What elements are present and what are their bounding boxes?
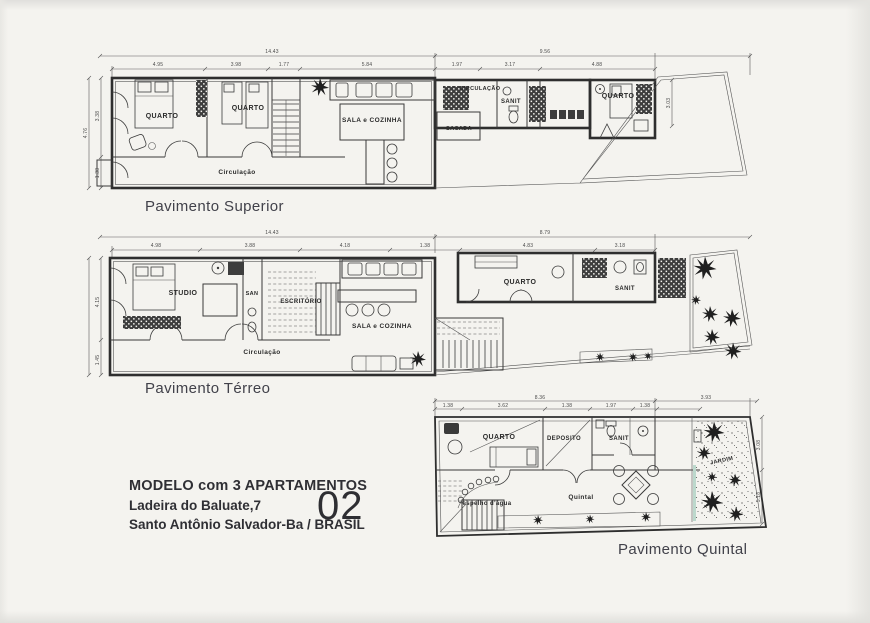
caption-pavimento-terreo: Pavimento Térreo bbox=[145, 380, 270, 397]
plant-icon bbox=[586, 515, 595, 524]
room-label-sanit: SANIT bbox=[501, 99, 521, 105]
closet-icon bbox=[529, 86, 546, 122]
dim-seg: 4.83 bbox=[523, 243, 534, 249]
dim-seg: 1.38 bbox=[562, 403, 573, 409]
room-label-studio: STUDIO bbox=[169, 290, 198, 297]
plan-quintal: 8.36 3.93 1.38 3.62 1.38 1.97 1.38 3.08 … bbox=[433, 395, 766, 536]
room-label-quarto: QUARTO bbox=[504, 279, 537, 286]
dim-seg: 4.98 bbox=[151, 243, 162, 249]
dim-total-terreo: 14.43 bbox=[265, 230, 279, 236]
dimension-lines: 14.43 9.56 4.95 3.98 1.77 5.84 1.97 3.17… bbox=[83, 49, 752, 190]
dim-seg: 4.95 bbox=[153, 62, 164, 68]
dim-vert: 3.08 bbox=[756, 440, 762, 451]
caption-pavimento-superior: Pavimento Superior bbox=[145, 198, 284, 215]
plan-terreo: 14.43 8.79 4.98 3.88 4.18 1.38 4.83 3.18… bbox=[87, 230, 752, 377]
wardrobe-icon bbox=[196, 80, 207, 117]
plant-icon bbox=[694, 257, 717, 280]
plant-icon bbox=[704, 329, 720, 345]
dim-vert: 1.45 bbox=[95, 355, 101, 366]
plant-icon bbox=[691, 295, 701, 305]
entry-stair-icon bbox=[435, 318, 503, 370]
plant-icon bbox=[596, 353, 605, 362]
room-label-quarto: QUARTO bbox=[146, 113, 179, 120]
room-label-sanit: SANIT bbox=[609, 436, 629, 442]
furniture bbox=[444, 420, 701, 505]
dim-seg: 1.97 bbox=[606, 403, 617, 409]
dim-seg: 3.18 bbox=[615, 243, 626, 249]
caption-pavimento-quintal: Pavimento Quintal bbox=[618, 541, 747, 558]
dim-seg: 1.38 bbox=[443, 403, 454, 409]
bench-icon bbox=[123, 316, 181, 329]
dim-seg: 4.88 bbox=[592, 62, 603, 68]
room-label-circulacao: CIRCULAÇÃO bbox=[460, 85, 501, 92]
room-label-quarto: QUARTO bbox=[602, 93, 635, 100]
planter-icon bbox=[658, 258, 686, 298]
walls bbox=[110, 253, 750, 375]
plant-icon bbox=[311, 78, 329, 96]
wardrobe-icon bbox=[636, 84, 652, 114]
room-label-sanit: SANIT bbox=[615, 286, 635, 292]
plan-superior: 14.43 9.56 4.95 3.98 1.77 5.84 1.97 3.17… bbox=[83, 49, 752, 190]
plant-icon bbox=[641, 512, 651, 522]
room-label-sala-cozinha: SALA e COZINHA bbox=[352, 323, 412, 330]
plant-icon bbox=[410, 351, 426, 367]
sheet-number: 02 bbox=[317, 484, 364, 529]
garden bbox=[498, 421, 761, 528]
room-label-san: SAN bbox=[246, 291, 259, 297]
doors bbox=[495, 443, 632, 485]
dim-seg: 5.84 bbox=[362, 62, 373, 68]
dim-total-superior: 14.43 bbox=[265, 49, 279, 55]
stair-icon bbox=[272, 100, 300, 156]
dim-seg: 3.88 bbox=[245, 243, 256, 249]
dim-seg: 1.77 bbox=[279, 62, 290, 68]
dim-seg: 4.18 bbox=[340, 243, 351, 249]
dim-vert: 3.38 bbox=[95, 111, 101, 122]
scanned-drawing-sheet: 14.43 9.56 4.95 3.98 1.77 5.84 1.97 3.17… bbox=[0, 0, 870, 623]
furniture bbox=[123, 256, 686, 371]
counter-icon bbox=[582, 258, 607, 278]
dim-seg: 1.97 bbox=[452, 62, 463, 68]
room-label-espelho-dagua: espelho d'água bbox=[462, 501, 511, 507]
room-label-sala-cozinha: SALA e COZINHA bbox=[342, 117, 402, 124]
plant-icon bbox=[644, 352, 652, 360]
dim-right-total-superior: 9.56 bbox=[540, 49, 551, 55]
plant-icon bbox=[533, 515, 543, 525]
dim-seg: 1.38 bbox=[420, 243, 431, 249]
room-label-sacada: SACADA bbox=[446, 126, 472, 132]
dim-seg: 3.93 bbox=[701, 395, 712, 401]
dim-vert: 3.03 bbox=[666, 98, 672, 109]
dim-total-quintal: 8.36 bbox=[535, 395, 546, 401]
plant-icon bbox=[629, 353, 638, 362]
room-label-circulacao: Circulação bbox=[218, 169, 255, 176]
dim-seg: 3.17 bbox=[505, 62, 516, 68]
plant-icon bbox=[723, 309, 741, 327]
room-label-escritorio: ESCRITÓRIO bbox=[280, 297, 321, 305]
dim-vert: 4.15 bbox=[95, 297, 101, 308]
dim-seg: 3.98 bbox=[231, 62, 242, 68]
room-label-quintal: Quintal bbox=[568, 494, 593, 501]
room-label-deposito: DEPOSITO bbox=[547, 436, 581, 442]
room-label-circulacao: Circulação bbox=[243, 349, 280, 356]
dim-right-total-terreo: 8.79 bbox=[540, 230, 551, 236]
dim-seg: 3.62 bbox=[498, 403, 509, 409]
room-label-quarto: QUARTO bbox=[232, 105, 265, 112]
dim-seg: 1.38 bbox=[640, 403, 651, 409]
dim-vert: 1.38 bbox=[95, 168, 101, 179]
room-label-quarto: QUARTO bbox=[483, 434, 516, 441]
dim-vert: 4.76 bbox=[83, 128, 89, 139]
plant-icon bbox=[702, 306, 718, 322]
